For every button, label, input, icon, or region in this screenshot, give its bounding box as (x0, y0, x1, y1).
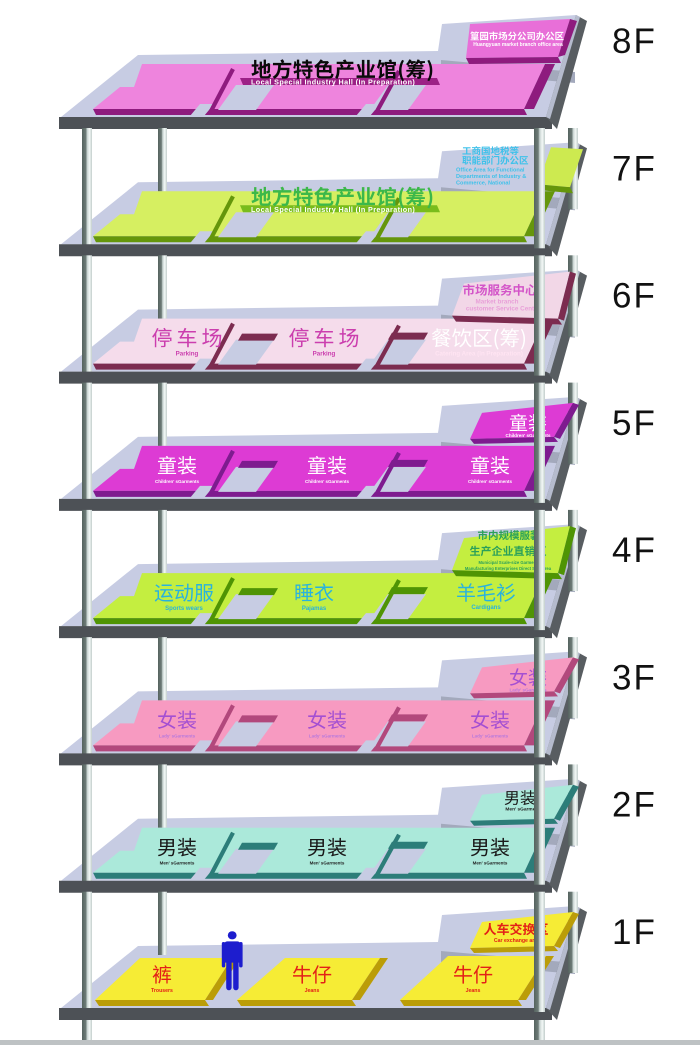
svg-text:3F: 3F (612, 658, 657, 697)
svg-text:Office Area for Functional: Office Area for Functional (456, 167, 525, 173)
svg-text:Cardigans: Cardigans (471, 605, 501, 611)
svg-text:Jeans: Jeans (305, 988, 320, 994)
svg-text:Jeans: Jeans (466, 988, 481, 994)
svg-text:5F: 5F (612, 404, 657, 443)
svg-text:Market branch: Market branch (475, 299, 518, 306)
svg-text:Children' sGarments: Children' sGarments (305, 479, 350, 484)
svg-text:1F: 1F (612, 913, 657, 952)
svg-text:Children' sGarments: Children' sGarments (155, 479, 200, 484)
svg-text:Men' sGarments: Men' sGarments (310, 861, 345, 866)
svg-text:7F: 7F (612, 149, 657, 188)
svg-text:Huangyuan market branch office: Huangyuan market branch office area (473, 42, 563, 48)
svg-text:Trousers: Trousers (151, 988, 173, 994)
svg-text:8F: 8F (612, 22, 657, 61)
svg-text:Parking: Parking (313, 351, 336, 358)
svg-text:2F: 2F (612, 786, 657, 825)
svg-text:Pajamas: Pajamas (302, 606, 327, 612)
svg-text:Catering Area (In Preparation): Catering Area (In Preparation) (435, 351, 523, 358)
svg-text:Men' sGarments: Men' sGarments (160, 861, 195, 866)
svg-text:Departments of Industry &: Departments of Industry & (456, 174, 526, 180)
svg-text:Lady' sGarments: Lady' sGarments (159, 733, 196, 738)
svg-text:Lady' sGarments: Lady' sGarments (472, 733, 509, 738)
svg-text:6F: 6F (612, 277, 657, 316)
svg-text:Sports wears: Sports wears (165, 606, 203, 612)
svg-text:Car exchange area: Car exchange area (494, 938, 540, 944)
svg-text:customer Service Center: customer Service Center (466, 306, 541, 313)
svg-text:Children' sGarments: Children' sGarments (468, 479, 513, 484)
svg-text:Lady' sGarments: Lady' sGarments (309, 733, 346, 738)
svg-text:Men' sGarments: Men' sGarments (473, 861, 508, 866)
svg-text:Municipal Scale-size Garment: Municipal Scale-size Garment (478, 560, 538, 565)
svg-text:Parking: Parking (176, 351, 199, 358)
svg-text:Local Special Industry Hall (I: Local Special Industry Hall (In Preparat… (251, 78, 415, 87)
svg-text:4F: 4F (612, 531, 657, 570)
svg-text:Commerce, National: Commerce, National (456, 180, 511, 186)
svg-text:Local Special Industry Hall (I: Local Special Industry Hall (In Preparat… (251, 205, 415, 214)
